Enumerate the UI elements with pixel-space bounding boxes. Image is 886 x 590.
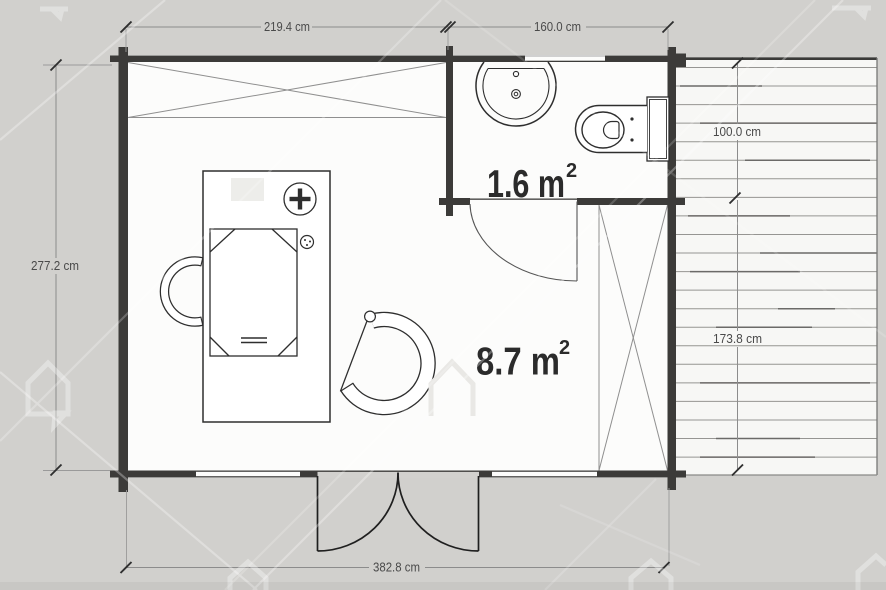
- svg-text:2: 2: [566, 160, 577, 182]
- svg-text:8.7 m: 8.7 m: [476, 341, 560, 384]
- svg-text:173.8 cm: 173.8 cm: [713, 332, 762, 346]
- svg-text:100.0 cm: 100.0 cm: [713, 125, 761, 139]
- svg-text:219.4 cm: 219.4 cm: [264, 20, 310, 34]
- svg-text:382.8 cm: 382.8 cm: [373, 561, 420, 575]
- svg-text:1.6 m: 1.6 m: [487, 163, 565, 206]
- svg-text:160.0 cm: 160.0 cm: [534, 20, 581, 34]
- svg-text:2: 2: [559, 337, 570, 359]
- svg-text:277.2 cm: 277.2 cm: [31, 259, 79, 273]
